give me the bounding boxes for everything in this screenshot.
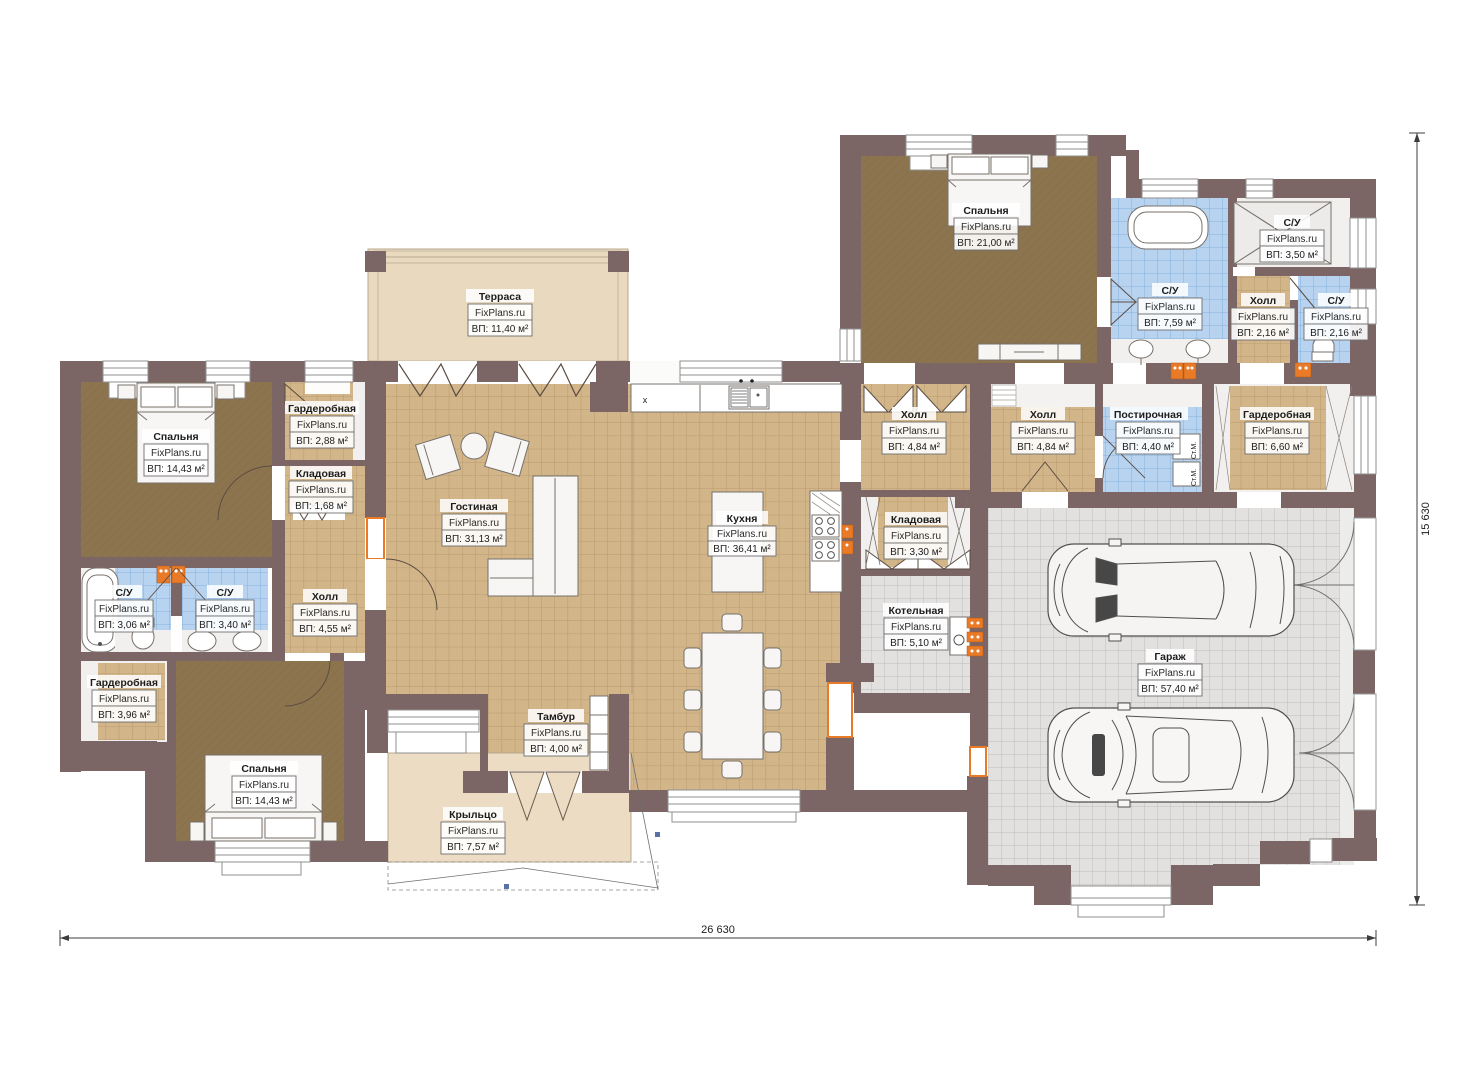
svg-text:Ст.М.: Ст.М. [1191, 469, 1198, 486]
svg-text:Спальня: Спальня [153, 431, 198, 443]
svg-text:Котельная: Котельная [889, 605, 944, 617]
svg-text:FixPlans.ru: FixPlans.ru [448, 826, 498, 837]
svg-text:FixPlans.ru: FixPlans.ru [1145, 302, 1195, 313]
svg-text:ВП: 31,13 м²: ВП: 31,13 м² [445, 534, 503, 545]
svg-text:Гардеробная: Гардеробная [288, 403, 356, 415]
svg-text:ВП: 3,40 м²: ВП: 3,40 м² [199, 620, 252, 631]
svg-text:ВП: 4,00 м²: ВП: 4,00 м² [530, 744, 583, 755]
svg-text:ВП: 5,10 м²: ВП: 5,10 м² [890, 638, 943, 649]
svg-text:15 630: 15 630 [1420, 502, 1432, 536]
svg-text:FixPlans.ru: FixPlans.ru [1018, 426, 1068, 437]
svg-text:Кухня: Кухня [727, 513, 758, 525]
svg-text:Холл: Холл [1250, 295, 1276, 307]
svg-text:С/У: С/У [1161, 285, 1179, 297]
svg-text:ВП: 3,50 м²: ВП: 3,50 м² [1266, 250, 1319, 261]
svg-text:FixPlans.ru: FixPlans.ru [891, 622, 941, 633]
svg-text:Постирочная: Постирочная [1114, 409, 1182, 421]
svg-text:Холл: Холл [1030, 409, 1056, 421]
svg-text:Ст.М.: Ст.М. [1191, 442, 1198, 459]
svg-text:ВП: 2,16 м²: ВП: 2,16 м² [1310, 328, 1363, 339]
svg-text:FixPlans.ru: FixPlans.ru [200, 604, 250, 615]
svg-text:Тамбур: Тамбур [537, 711, 575, 723]
svg-text:Гараж: Гараж [1154, 651, 1186, 663]
svg-text:ВП: 2,88 м²: ВП: 2,88 м² [296, 436, 349, 447]
svg-text:FixPlans.ru: FixPlans.ru [1267, 234, 1317, 245]
svg-text:Крыльцо: Крыльцо [449, 809, 497, 821]
svg-text:Гардеробная: Гардеробная [90, 677, 158, 689]
svg-text:Кладовая: Кладовая [296, 468, 346, 480]
svg-text:FixPlans.ru: FixPlans.ru [531, 728, 581, 739]
svg-text:Гардеробная: Гардеробная [1243, 409, 1311, 421]
svg-text:С/У: С/У [216, 587, 234, 599]
svg-text:С/У: С/У [1327, 295, 1345, 307]
svg-text:ВП: 4,84 м²: ВП: 4,84 м² [888, 442, 941, 453]
svg-text:ВП: 3,30 м²: ВП: 3,30 м² [890, 547, 943, 558]
svg-text:Терраса: Терраса [479, 291, 521, 303]
svg-text:С/У: С/У [1283, 217, 1301, 229]
svg-text:FixPlans.ru: FixPlans.ru [717, 529, 767, 540]
svg-text:FixPlans.ru: FixPlans.ru [99, 694, 149, 705]
svg-text:FixPlans.ru: FixPlans.ru [99, 604, 149, 615]
svg-text:Холл: Холл [901, 409, 927, 421]
svg-text:ВП: 14,43 м²: ВП: 14,43 м² [235, 796, 293, 807]
svg-text:FixPlans.ru: FixPlans.ru [297, 420, 347, 431]
svg-text:Холл: Холл [312, 591, 338, 603]
svg-text:FixPlans.ru: FixPlans.ru [1145, 668, 1195, 679]
svg-text:ВП: 7,59 м²: ВП: 7,59 м² [1144, 318, 1197, 329]
svg-text:ВП: 57,40 м²: ВП: 57,40 м² [1141, 684, 1199, 695]
svg-text:FixPlans.ru: FixPlans.ru [961, 222, 1011, 233]
svg-text:FixPlans.ru: FixPlans.ru [239, 780, 289, 791]
svg-text:Спальня: Спальня [963, 205, 1008, 217]
svg-text:FixPlans.ru: FixPlans.ru [1252, 426, 1302, 437]
svg-text:FixPlans.ru: FixPlans.ru [475, 308, 525, 319]
svg-text:ВП: 3,06 м²: ВП: 3,06 м² [98, 620, 151, 631]
svg-text:FixPlans.ru: FixPlans.ru [1123, 426, 1173, 437]
svg-text:FixPlans.ru: FixPlans.ru [151, 448, 201, 459]
svg-text:FixPlans.ru: FixPlans.ru [889, 426, 939, 437]
svg-text:FixPlans.ru: FixPlans.ru [1311, 312, 1361, 323]
svg-text:ВП: 11,40 м²: ВП: 11,40 м² [472, 324, 529, 335]
svg-text:ВП: 4,40 м²: ВП: 4,40 м² [1122, 442, 1175, 453]
svg-text:FixPlans.ru: FixPlans.ru [449, 518, 499, 529]
svg-text:Кладовая: Кладовая [891, 514, 941, 526]
svg-text:FixPlans.ru: FixPlans.ru [296, 485, 346, 496]
svg-text:FixPlans.ru: FixPlans.ru [1238, 312, 1288, 323]
svg-text:ВП: 4,84 м²: ВП: 4,84 м² [1017, 442, 1070, 453]
svg-text:ВП: 36,41 м²: ВП: 36,41 м² [713, 544, 771, 555]
svg-text:ВП: 1,68 м²: ВП: 1,68 м² [295, 501, 348, 512]
svg-text:ВП: 7,57 м²: ВП: 7,57 м² [447, 842, 500, 853]
svg-text:26 630: 26 630 [701, 924, 735, 936]
svg-text:ВП: 14,43 м²: ВП: 14,43 м² [147, 464, 205, 475]
svg-text:ВП: 3,96 м²: ВП: 3,96 м² [98, 710, 151, 721]
svg-text:С/У: С/У [115, 587, 133, 599]
svg-text:ВП: 6,60 м²: ВП: 6,60 м² [1251, 442, 1304, 453]
svg-text:Гостиная: Гостиная [450, 501, 497, 513]
svg-text:ВП: 21,00 м²: ВП: 21,00 м² [957, 238, 1015, 249]
svg-text:ВП: 4,55 м²: ВП: 4,55 м² [299, 624, 352, 635]
svg-text:ВП: 2,16 м²: ВП: 2,16 м² [1237, 328, 1290, 339]
svg-text:FixPlans.ru: FixPlans.ru [891, 531, 941, 542]
svg-text:FixPlans.ru: FixPlans.ru [300, 608, 350, 619]
svg-text:Спальня: Спальня [241, 763, 286, 775]
svg-text:x: x [643, 395, 648, 405]
